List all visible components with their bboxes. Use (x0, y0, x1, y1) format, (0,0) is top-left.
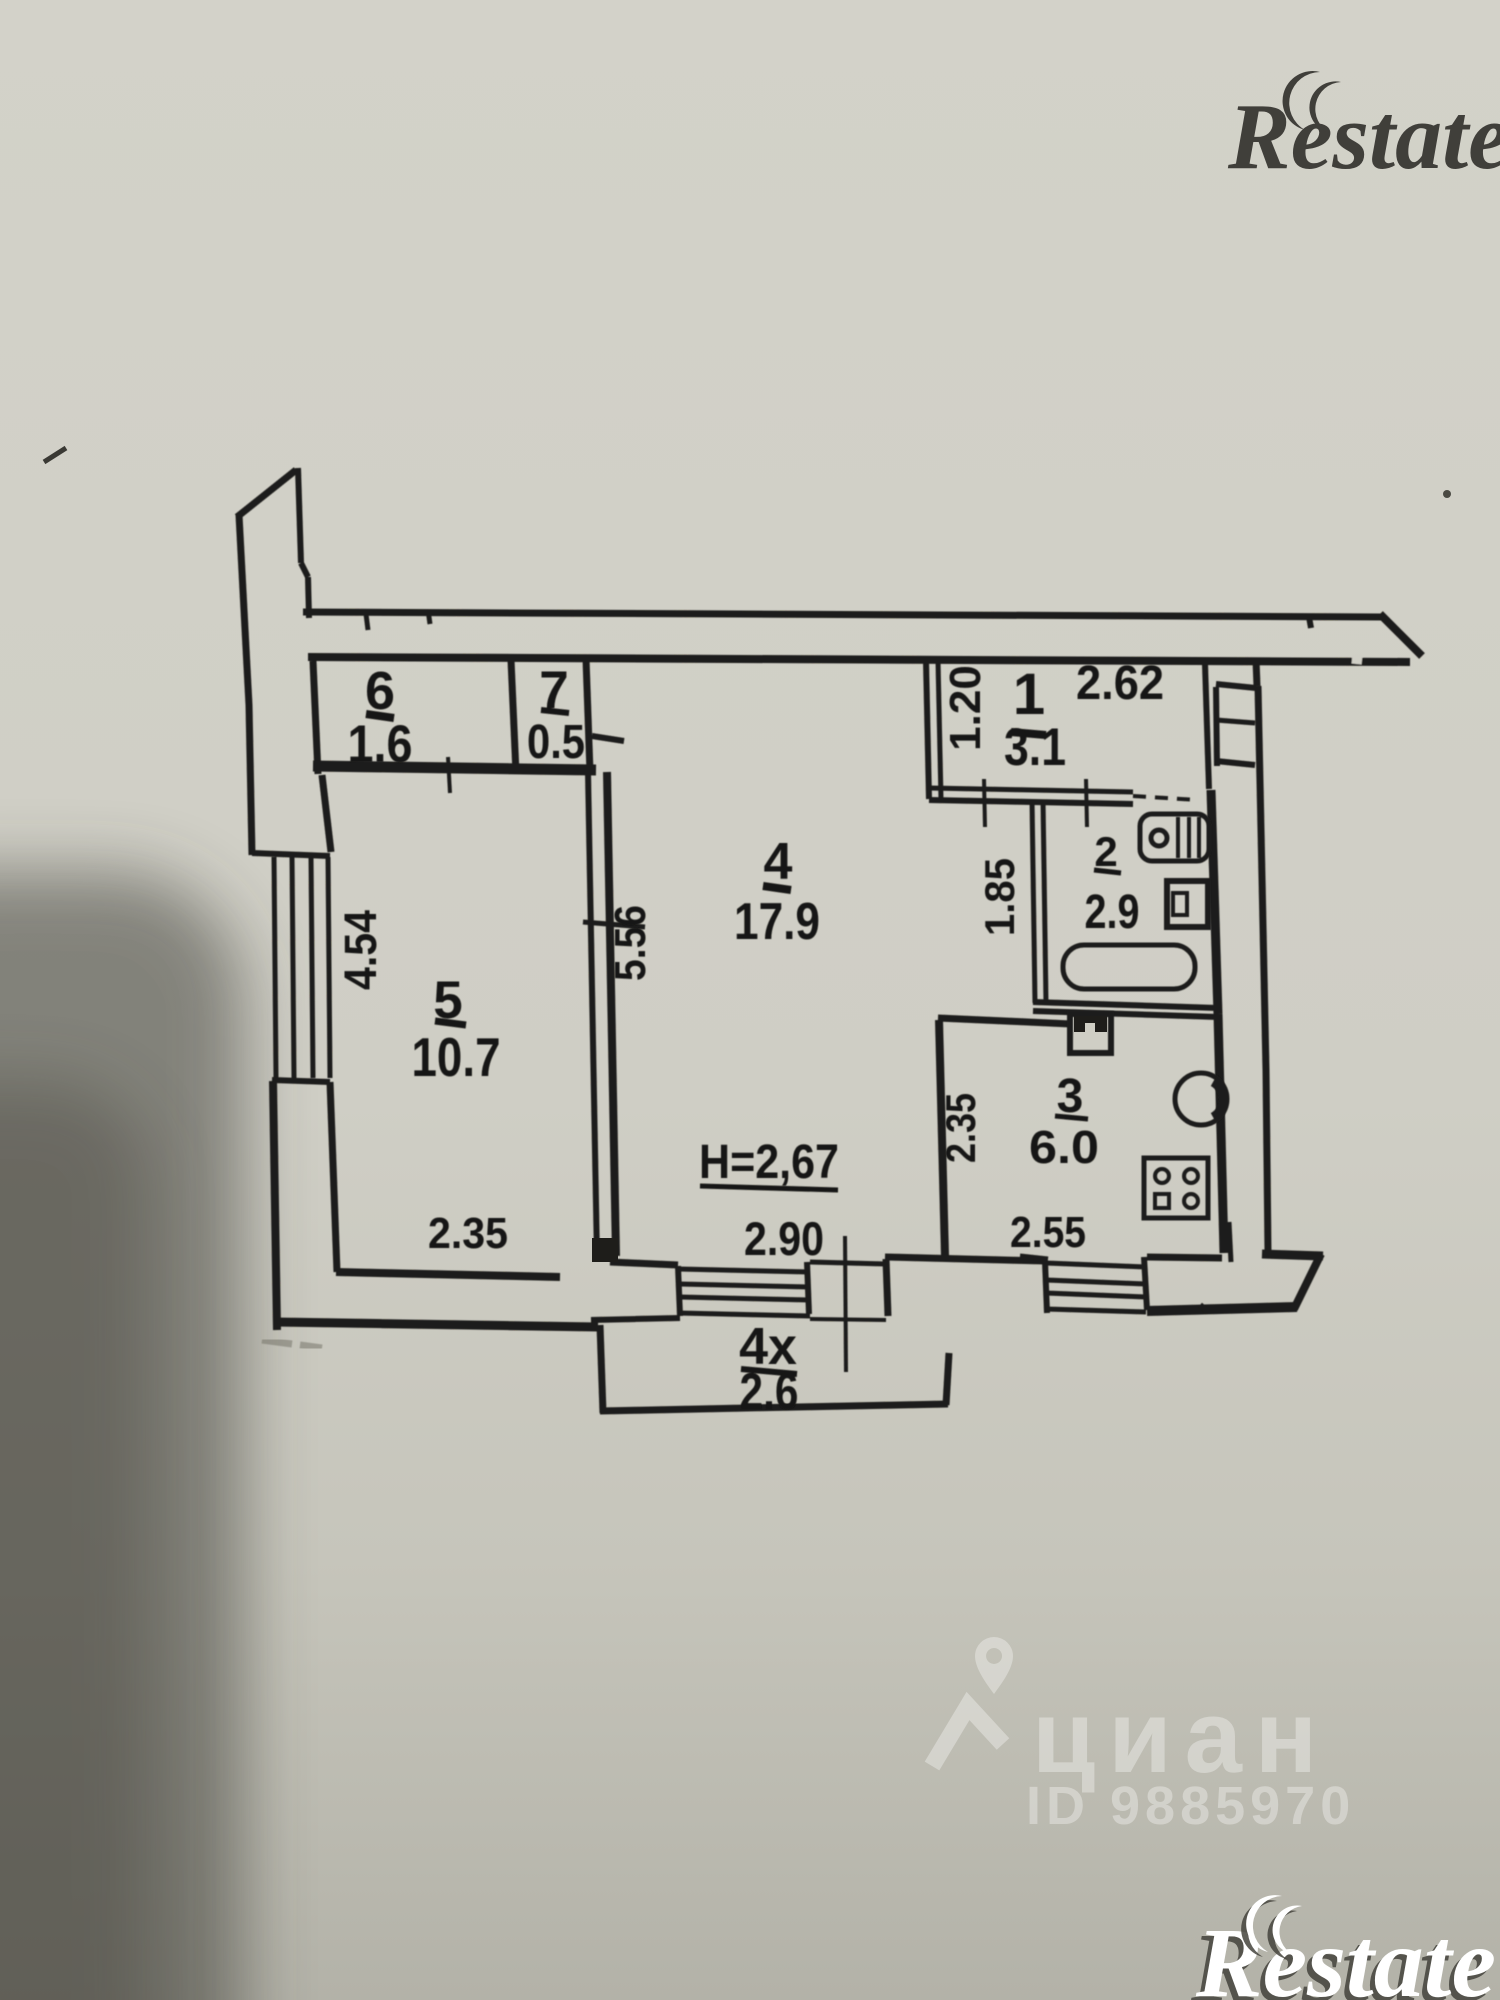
svg-text:4: 4 (764, 833, 793, 891)
svg-text:1.6: 1.6 (348, 715, 413, 774)
svg-text:2.90: 2.90 (744, 1212, 824, 1265)
svg-text:2.55: 2.55 (1010, 1208, 1086, 1257)
svg-text:2.6: 2.6 (740, 1363, 799, 1421)
svg-text:4.54: 4.54 (335, 910, 386, 990)
svg-text:Н=2,67: Н=2,67 (699, 1136, 839, 1189)
svg-text:2.62: 2.62 (1076, 657, 1164, 710)
svg-text:Restate: Restate (1227, 85, 1500, 189)
svg-text:3.1: 3.1 (1004, 718, 1066, 777)
svg-text:17.9: 17.9 (734, 893, 820, 951)
svg-text:ID 9885970: ID 9885970 (1026, 1776, 1355, 1836)
svg-text:Restate: Restate (1195, 1907, 1496, 2000)
svg-text:6.0: 6.0 (1029, 1121, 1099, 1173)
svg-text:5.56: 5.56 (606, 905, 655, 981)
svg-text:0.5: 0.5 (527, 716, 585, 769)
svg-text:10.7: 10.7 (412, 1026, 501, 1088)
svg-text:1.85: 1.85 (976, 858, 1023, 936)
svg-text:2.35: 2.35 (428, 1209, 508, 1258)
svg-text:2.35: 2.35 (937, 1093, 984, 1163)
svg-text:2.9: 2.9 (1085, 886, 1140, 939)
svg-text:1.20: 1.20 (941, 665, 990, 751)
